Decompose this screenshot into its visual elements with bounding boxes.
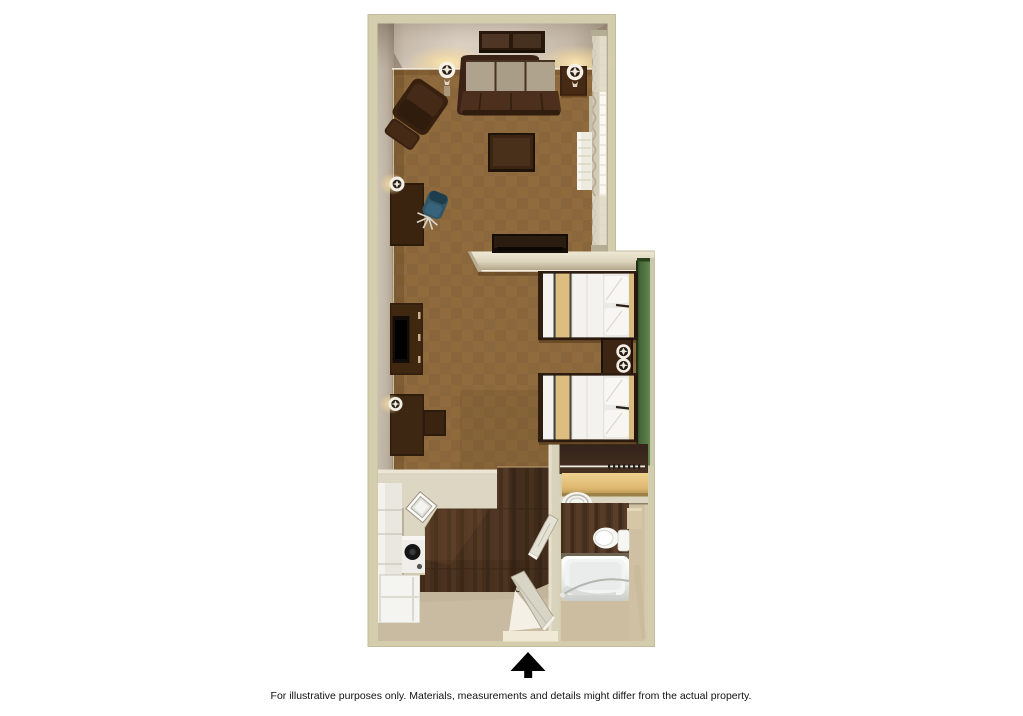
svg-text:For illustrative purposes only: For illustrative purposes only. Material… bbox=[271, 690, 752, 702]
